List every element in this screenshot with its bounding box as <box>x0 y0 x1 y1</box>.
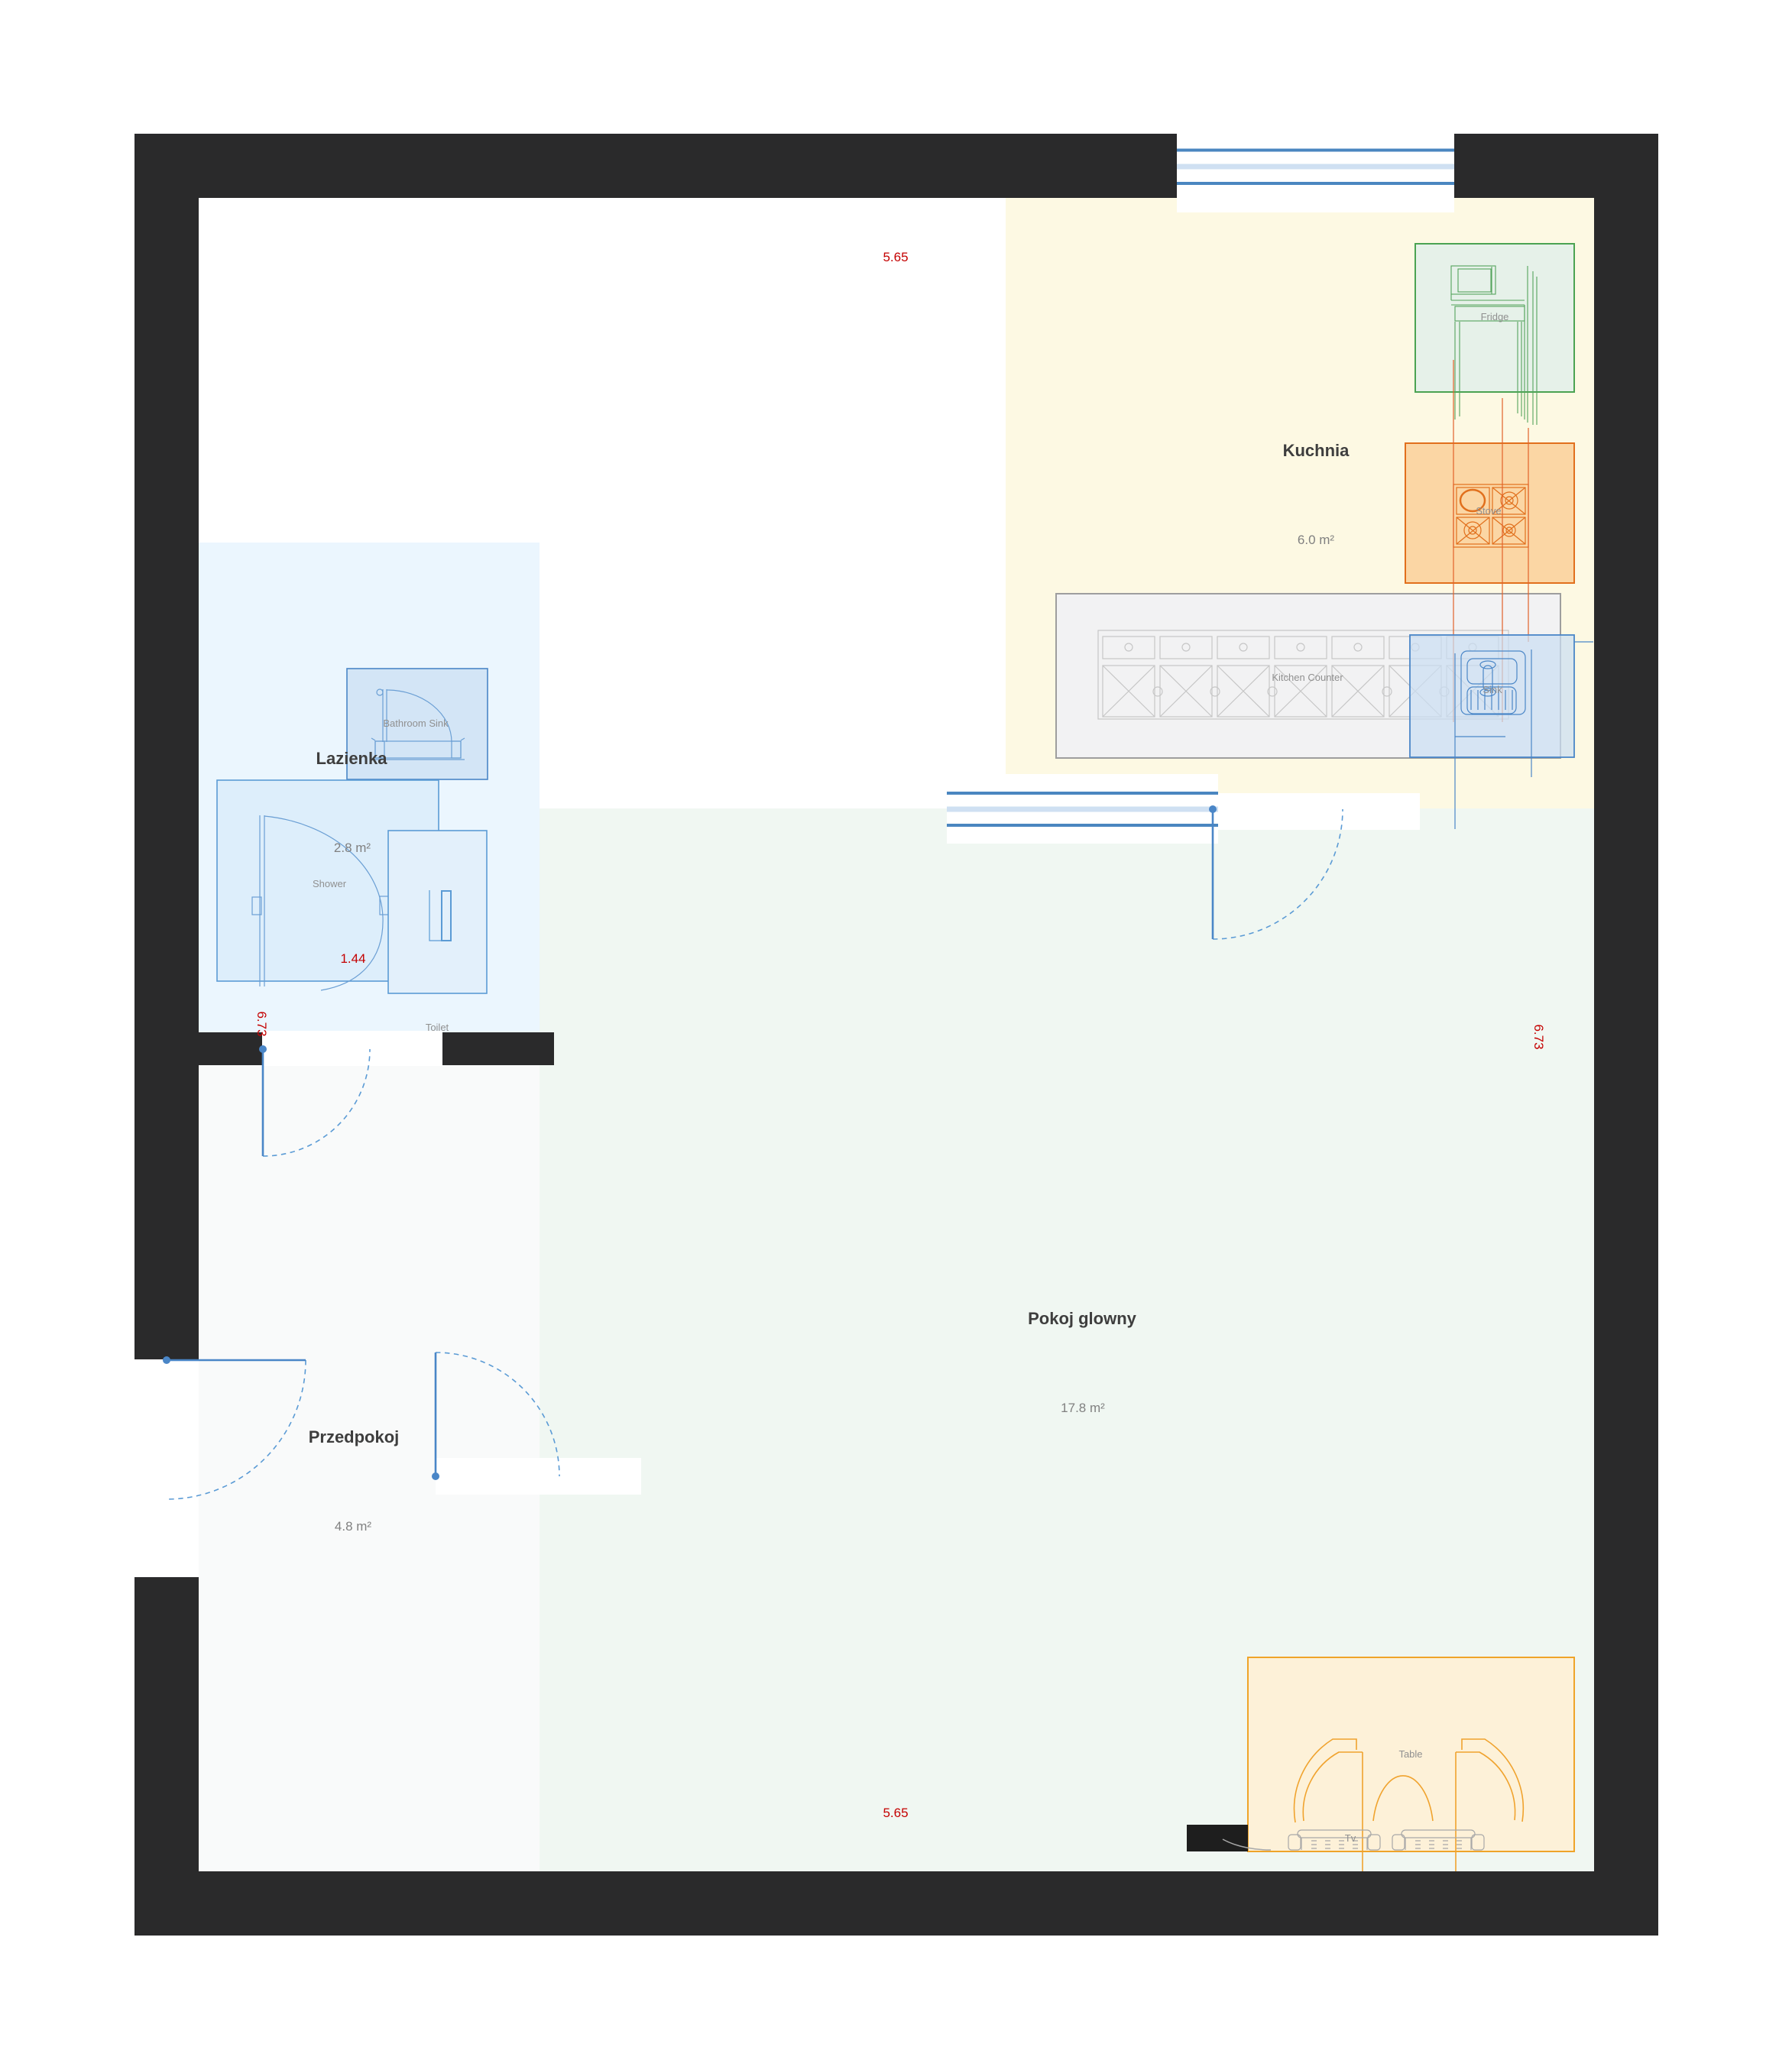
svg-text:4.8 m²: 4.8 m² <box>335 1519 372 1534</box>
svg-text:5.65: 5.65 <box>883 250 908 264</box>
svg-text:Shower: Shower <box>313 878 347 889</box>
svg-text:6.73: 6.73 <box>1531 1024 1546 1049</box>
svg-text:6.73: 6.73 <box>254 1011 269 1036</box>
svg-text:2.8 m²: 2.8 m² <box>334 841 371 855</box>
svg-text:5.65: 5.65 <box>883 1806 908 1820</box>
svg-text:Stove: Stove <box>1476 505 1501 517</box>
svg-text:Kitchen Counter: Kitchen Counter <box>1272 672 1343 683</box>
svg-text:17.8 m²: 17.8 m² <box>1061 1401 1105 1415</box>
svg-text:Toilet: Toilet <box>426 1022 449 1033</box>
svg-text:Lazienka: Lazienka <box>316 749 388 768</box>
svg-text:Przedpokoj: Przedpokoj <box>309 1427 400 1446</box>
svg-text:Fridge: Fridge <box>1481 311 1509 322</box>
svg-text:Tv: Tv <box>1345 1832 1356 1844</box>
svg-text:Table: Table <box>1398 1748 1422 1760</box>
svg-text:1.44: 1.44 <box>340 951 365 966</box>
svg-text:Pokoj glowny: Pokoj glowny <box>1028 1309 1137 1328</box>
svg-text:Kuchnia: Kuchnia <box>1283 441 1350 460</box>
svg-text:6.0 m²: 6.0 m² <box>1298 533 1335 547</box>
svg-text:Bathroom Sink: Bathroom Sink <box>383 718 449 729</box>
svg-text:Sink: Sink <box>1483 684 1502 695</box>
